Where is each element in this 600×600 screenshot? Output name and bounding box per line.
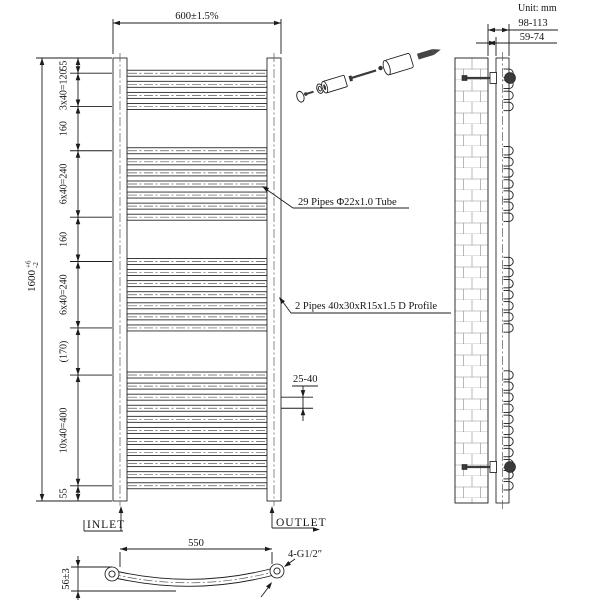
pipe-end-bump (509, 180, 513, 188)
height-tolerance-minus: -2 (32, 262, 40, 268)
pipe-end-bump (509, 102, 513, 110)
pipe-end-bump (509, 393, 513, 401)
dim-chain-label: 160 (59, 232, 70, 247)
pipe-array (115, 70, 280, 489)
pipe-end-bump (509, 257, 513, 265)
brick-wall (455, 58, 488, 503)
pipe-gap-dimension-label: 25-40 (293, 374, 318, 385)
towel-radiator-technical-drawing: 553x40=1201606x40=2401606x40=240(170)10x… (0, 0, 600, 600)
pipe-note-label: 29 Pipes Φ22x1.0 Tube (298, 197, 397, 208)
dim-arrow (301, 390, 306, 397)
left-fitting (105, 567, 119, 581)
dim-arrow (76, 560, 81, 567)
side-view-rail (496, 52, 509, 509)
dim-arrow (265, 547, 272, 552)
dim-arrow (76, 368, 81, 375)
dim-arrow (76, 217, 81, 224)
inlet-label: INLET (87, 519, 125, 531)
wall-gap-dimension-label: 59-74 (520, 32, 545, 43)
dim-arrow (76, 255, 81, 262)
dim-arrow (76, 262, 81, 269)
pipe-end-bump (509, 382, 513, 390)
dim-arrow (76, 479, 81, 486)
dim-arrow (113, 21, 120, 26)
dim-arrow (76, 144, 81, 151)
curve-bottom-edge (113, 575, 276, 587)
dim-arrow (40, 58, 45, 65)
dim-arrow (488, 28, 495, 33)
width-dimension-label: 600±1.5% (175, 11, 219, 22)
pipe-end-bump (509, 202, 513, 210)
pipe-end-bump (509, 426, 513, 434)
dim-arrow (76, 486, 81, 493)
outlet-arrow (270, 506, 275, 513)
bracket-clamp (505, 73, 516, 84)
screw-head (462, 465, 467, 470)
unit-label: Unit: mm (518, 3, 557, 14)
side-view-wall (455, 58, 488, 503)
pipe-end-bump (509, 147, 513, 155)
wall-depth-dimension-label: 98-113 (518, 18, 547, 29)
dim-chain-label: 55 (59, 61, 70, 71)
height-value: 1600 (26, 270, 38, 293)
dim-arrow (120, 547, 127, 552)
drawing-page: 553x40=1201606x40=2401606x40=240(170)10x… (0, 0, 600, 600)
right-fitting (270, 564, 284, 578)
curve-top-edge (113, 568, 276, 580)
pipe-end-bump (509, 291, 513, 299)
outlet-label: OUTLET (276, 517, 327, 529)
pipe-end-bump (509, 371, 513, 379)
dim-arrow (76, 591, 81, 598)
pipe-end-bump (509, 268, 513, 276)
pipe-end-bump (509, 324, 513, 332)
dim-chain-label: 55 (59, 488, 70, 498)
dim-chain-label: (170) (59, 341, 70, 363)
small-screw (306, 92, 314, 94)
washer-hole (318, 86, 322, 91)
dim-chain-label: 160 (59, 121, 70, 136)
pipe-end-bump (509, 169, 513, 177)
dim-arrow (76, 151, 81, 158)
dim-chain-label: 10x40=400 (59, 408, 70, 454)
screw-head (462, 76, 467, 81)
dim-arrow (76, 106, 81, 113)
pipe-end-bump (509, 158, 513, 166)
long-screw (351, 70, 376, 78)
bracket-sleeve (490, 73, 497, 84)
dim-arrow (76, 328, 81, 335)
dim-arrow (502, 28, 509, 33)
dim-arrow (76, 375, 81, 382)
mounting-kit-exploded-view (294, 44, 443, 103)
leader-arrow (266, 581, 274, 589)
dim-chain-label: 6x40=240 (59, 164, 70, 205)
bracket-clamp (505, 462, 516, 473)
dim-arrow (40, 494, 45, 501)
pipe-end-bump (509, 91, 513, 99)
dim-arrow (274, 21, 281, 26)
dim-arrow (76, 210, 81, 217)
bottom-depth-dimension-label: 56±3 (61, 568, 72, 590)
pipe-end-bump (509, 313, 513, 321)
dim-arrow (76, 73, 81, 80)
end-cap (295, 90, 305, 103)
dim-arrow (76, 66, 81, 73)
overall-height-dimension-label: 1600 +6 -2 (25, 260, 41, 292)
pipe-end-bump (509, 448, 513, 456)
pipe-end-bump (509, 415, 513, 423)
pipe-end-bump (509, 482, 513, 490)
thread-size-label: 4-G1/2″ (288, 549, 322, 560)
bottom-view-curved-rail (105, 564, 284, 586)
pipe-end-bump (509, 404, 513, 412)
pipe-end-bump (509, 191, 513, 199)
bottom-width-dimension-label: 550 (188, 538, 204, 549)
pipe-end-bump (509, 279, 513, 287)
spacer-nut (378, 65, 383, 70)
dim-arrow (76, 494, 81, 501)
dim-arrow (76, 99, 81, 106)
inlet-arrow (119, 506, 124, 513)
profile-note-label: 2 Pipes 40x30xR15x1.5 D Profile (295, 301, 437, 312)
dim-chain-label: 6x40=240 (59, 274, 70, 315)
dim-chain-label: 3x40=120 (59, 70, 70, 111)
depth-value: 56±3 (61, 568, 72, 590)
dim-arrow (301, 408, 306, 415)
dim-arrow (76, 58, 81, 65)
pipe-end-bump (509, 437, 513, 445)
pipe-end-bump (509, 302, 513, 310)
wall-anchor-tip (432, 47, 441, 55)
pipe-end-bump (509, 213, 513, 221)
wall-anchor (417, 49, 434, 59)
dim-arrow (76, 321, 81, 328)
bracket-sleeve (490, 462, 497, 473)
